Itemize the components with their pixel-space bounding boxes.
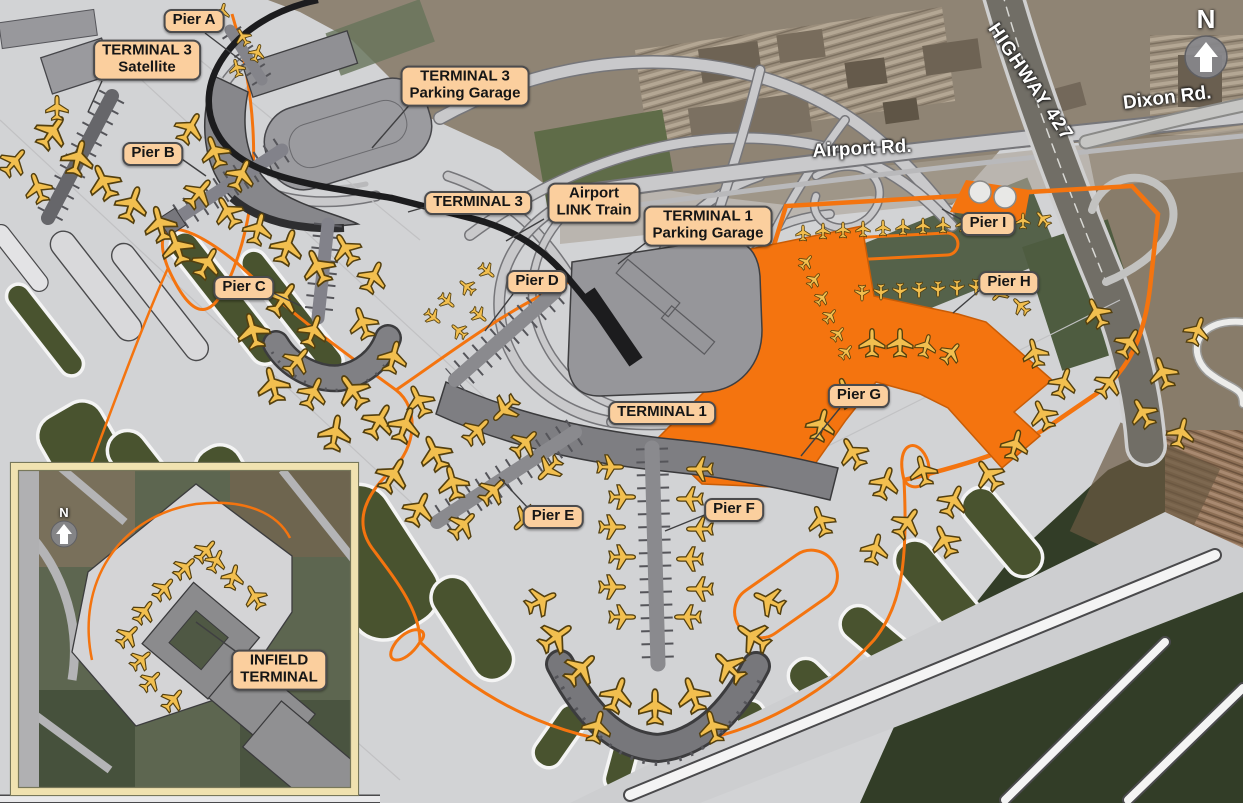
airplane-icon bbox=[266, 225, 308, 269]
airplane-icon bbox=[521, 581, 562, 621]
airplane-icon bbox=[296, 244, 340, 290]
airplane-icon bbox=[111, 182, 153, 226]
airplane-icon bbox=[475, 259, 499, 283]
label-pier-c: Pier C bbox=[213, 276, 274, 300]
inset-compass-north-letter: N bbox=[59, 506, 68, 519]
label-pier-a: Pier A bbox=[164, 9, 225, 33]
airplane-icon bbox=[609, 545, 636, 569]
airplane-icon bbox=[677, 487, 704, 511]
label-pier-d: Pier D bbox=[506, 270, 567, 294]
inset-north-arrow bbox=[51, 521, 77, 547]
airplane-icon bbox=[803, 502, 839, 540]
airplane-icon bbox=[29, 108, 76, 155]
airplane-icon bbox=[455, 275, 479, 299]
north-arrow bbox=[1185, 36, 1227, 78]
label-pier-h: Pier H bbox=[978, 271, 1039, 295]
label-pier-b: Pier B bbox=[122, 142, 183, 166]
airplane-icon bbox=[687, 577, 714, 601]
airplane-icon bbox=[866, 463, 904, 503]
airplane-icon bbox=[748, 581, 789, 621]
label-terminal-1-parking-garage: TERMINAL 1 Parking Garage bbox=[644, 206, 773, 247]
airplane-icon bbox=[675, 605, 702, 629]
airplane-icon bbox=[609, 605, 636, 629]
airplane-icon bbox=[467, 303, 491, 327]
label-pier-g: Pier G bbox=[828, 384, 890, 408]
airplane-icon bbox=[435, 289, 459, 313]
label-terminal-1: TERMINAL 1 bbox=[608, 401, 716, 425]
label-infield-terminal: INFIELD TERMINAL bbox=[231, 650, 327, 691]
label-airport-link-train: Airport LINK Train bbox=[547, 183, 640, 224]
airplane-icon bbox=[876, 220, 891, 236]
airplane-icon bbox=[858, 531, 892, 567]
airplane-icon bbox=[609, 485, 636, 509]
airplane-icon bbox=[677, 547, 704, 571]
label-terminal-3: TERMINAL 3 bbox=[424, 191, 532, 215]
airplane-icon bbox=[639, 689, 671, 724]
fuel-tank bbox=[969, 181, 991, 203]
airplane-icon bbox=[599, 575, 626, 599]
label-pier-e: Pier E bbox=[523, 505, 584, 529]
airplane-icon bbox=[599, 515, 626, 539]
fuel-tank bbox=[994, 186, 1016, 208]
airplane-icon bbox=[886, 502, 928, 545]
street-label-airport-rd: Airport Rd. bbox=[812, 137, 912, 161]
label-pier-i: Pier I bbox=[961, 212, 1016, 236]
label-terminal-3-satellite: TERMINAL 3 Satellite bbox=[93, 40, 201, 81]
label-terminal-3-parking-garage: TERMINAL 3 Parking Garage bbox=[401, 66, 530, 107]
airport-map: Airport Rd. HIGHWAY 427 Dixon Rd. N N Pi… bbox=[0, 0, 1243, 803]
airplane-icon bbox=[906, 453, 940, 489]
compass-north-letter: N bbox=[1197, 6, 1216, 32]
airplane-icon bbox=[46, 96, 69, 121]
label-pier-f: Pier F bbox=[704, 498, 764, 522]
airplane-icon bbox=[1008, 293, 1034, 319]
airplane-icon bbox=[353, 256, 393, 297]
airplane-icon bbox=[421, 305, 445, 329]
